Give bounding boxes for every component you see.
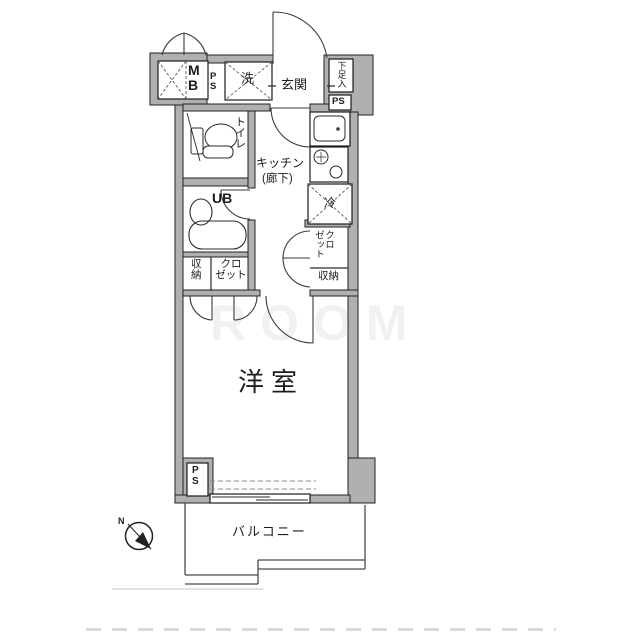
unit-bath-label: UB <box>212 191 232 206</box>
bath-fixtures <box>189 199 246 249</box>
closet-right-door-arc <box>283 231 310 287</box>
window-sill-dashes <box>210 481 316 489</box>
wall-segment <box>248 111 255 188</box>
watermark-text: ROOM <box>210 294 422 352</box>
ps-entry-label: P S <box>210 72 216 92</box>
storage-right-label: 収納 <box>318 271 339 282</box>
storage-left-label: 収 納 <box>191 259 202 281</box>
wall-segment <box>310 495 350 503</box>
entrance-door-arc <box>273 12 327 58</box>
balcony-label: バルコニー <box>232 525 307 539</box>
kitchen-label: キッチン <box>256 157 304 170</box>
wall-segment <box>348 112 358 465</box>
fridge-label: 冷 <box>324 197 336 210</box>
hall-door-arc <box>271 108 310 147</box>
western-room-label: 洋室 <box>238 369 304 396</box>
wall-segment <box>175 105 183 503</box>
toilet-fixtures <box>187 113 237 161</box>
shoe-cabinet-label: 下足入 <box>336 61 345 91</box>
meter-box <box>158 61 208 99</box>
wall-segment <box>183 178 248 186</box>
compass-icon: N <box>118 516 153 550</box>
scan-artifact-dashes <box>86 628 556 631</box>
balcony-rail <box>185 503 365 584</box>
washer-label: 洗 <box>241 72 254 86</box>
ps-bottom-label: P S <box>192 466 199 487</box>
closet-right-label: クロ ゼット <box>313 230 333 268</box>
entrance-label: 玄関 <box>281 78 307 92</box>
wall-segment <box>183 252 248 257</box>
sink-drain-icon <box>336 127 339 130</box>
meter-box-label: M B <box>188 63 200 92</box>
toilet-base-icon <box>203 146 233 158</box>
closet-left-label: クロ ゼット <box>212 259 250 281</box>
ps-top-right-label: PS <box>332 97 345 107</box>
window-frame <box>210 494 310 503</box>
compass-north-label: N <box>118 516 125 526</box>
wall-segment <box>248 220 255 293</box>
kitchen-sub-label: (廊下) <box>262 173 293 185</box>
meterbox-door-arc <box>162 33 206 55</box>
wall-segment <box>348 458 375 503</box>
bathtub-icon <box>189 221 246 249</box>
wall-segment <box>183 104 270 111</box>
floorplan-page: ROOM <box>0 0 640 640</box>
balcony-outline <box>112 503 365 589</box>
toilet-label: トイレ <box>233 116 245 168</box>
